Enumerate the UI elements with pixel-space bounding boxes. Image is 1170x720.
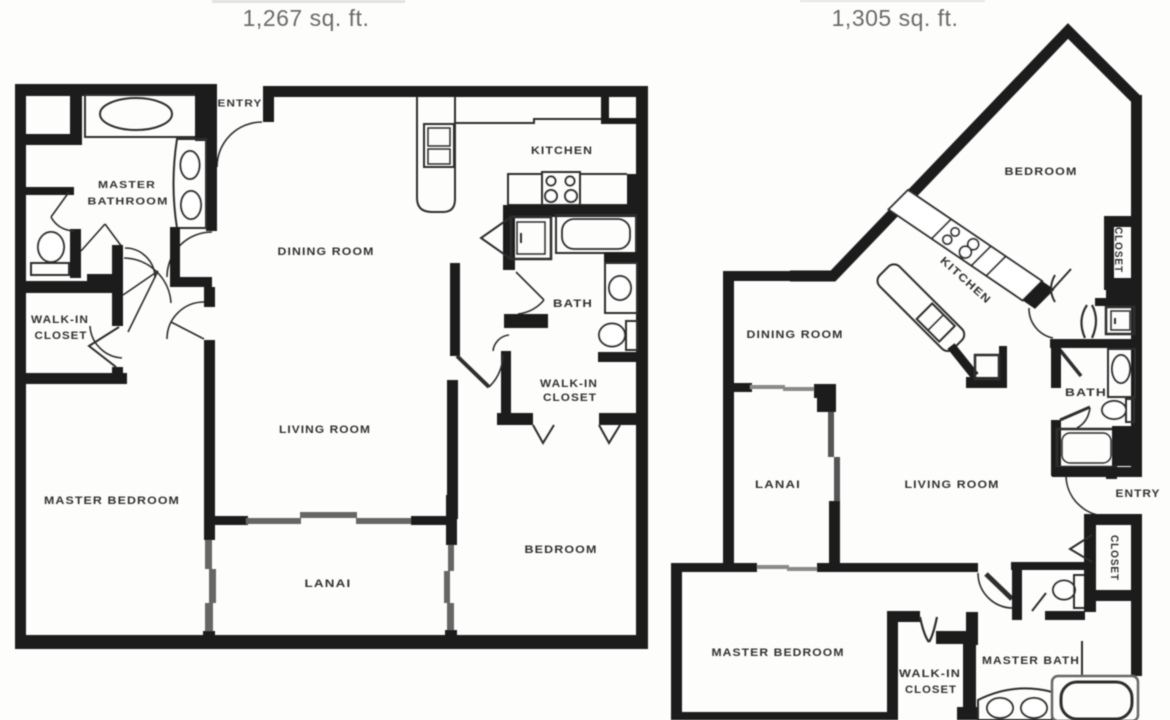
- svg-text:KITCHEN: KITCHEN: [531, 145, 593, 157]
- svg-text:DINING ROOM: DINING ROOM: [747, 329, 844, 341]
- svg-text:CLOSET: CLOSET: [35, 330, 88, 342]
- svg-text:CLOSET: CLOSET: [1112, 227, 1124, 273]
- svg-text:DINING ROOM: DINING ROOM: [278, 246, 375, 258]
- svg-text:LANAI: LANAI: [305, 578, 352, 590]
- svg-text:BATH: BATH: [553, 298, 593, 310]
- svg-text:CLOSET: CLOSET: [905, 684, 957, 696]
- svg-text:BATH: BATH: [1065, 387, 1107, 399]
- svg-text:1,305 sq. ft.: 1,305 sq. ft.: [832, 5, 959, 31]
- svg-text:MASTER BEDROOM: MASTER BEDROOM: [712, 647, 845, 659]
- svg-text:BEDROOM: BEDROOM: [1005, 166, 1078, 178]
- svg-text:MASTER: MASTER: [98, 179, 156, 191]
- svg-text:CLOSET: CLOSET: [1108, 535, 1120, 581]
- svg-text:LIVING ROOM: LIVING ROOM: [905, 479, 1000, 491]
- svg-text:LANAI: LANAI: [755, 479, 801, 491]
- svg-text:WALK-IN: WALK-IN: [899, 668, 961, 680]
- svg-text:BATHROOM: BATHROOM: [88, 195, 169, 207]
- svg-text:WALK-IN: WALK-IN: [540, 378, 598, 390]
- svg-text:1,267 sq. ft.: 1,267 sq. ft.: [243, 5, 370, 31]
- svg-text:LIVING ROOM: LIVING ROOM: [279, 424, 371, 436]
- svg-text:CLOSET: CLOSET: [543, 392, 597, 404]
- svg-text:MASTER BEDROOM: MASTER BEDROOM: [44, 495, 180, 507]
- svg-text:MASTER BATH: MASTER BATH: [982, 655, 1080, 667]
- svg-text:ENTRY: ENTRY: [1116, 488, 1161, 500]
- svg-text:ENTRY: ENTRY: [218, 99, 263, 110]
- svg-text:BEDROOM: BEDROOM: [525, 544, 598, 556]
- svg-text:WALK-IN: WALK-IN: [31, 314, 89, 326]
